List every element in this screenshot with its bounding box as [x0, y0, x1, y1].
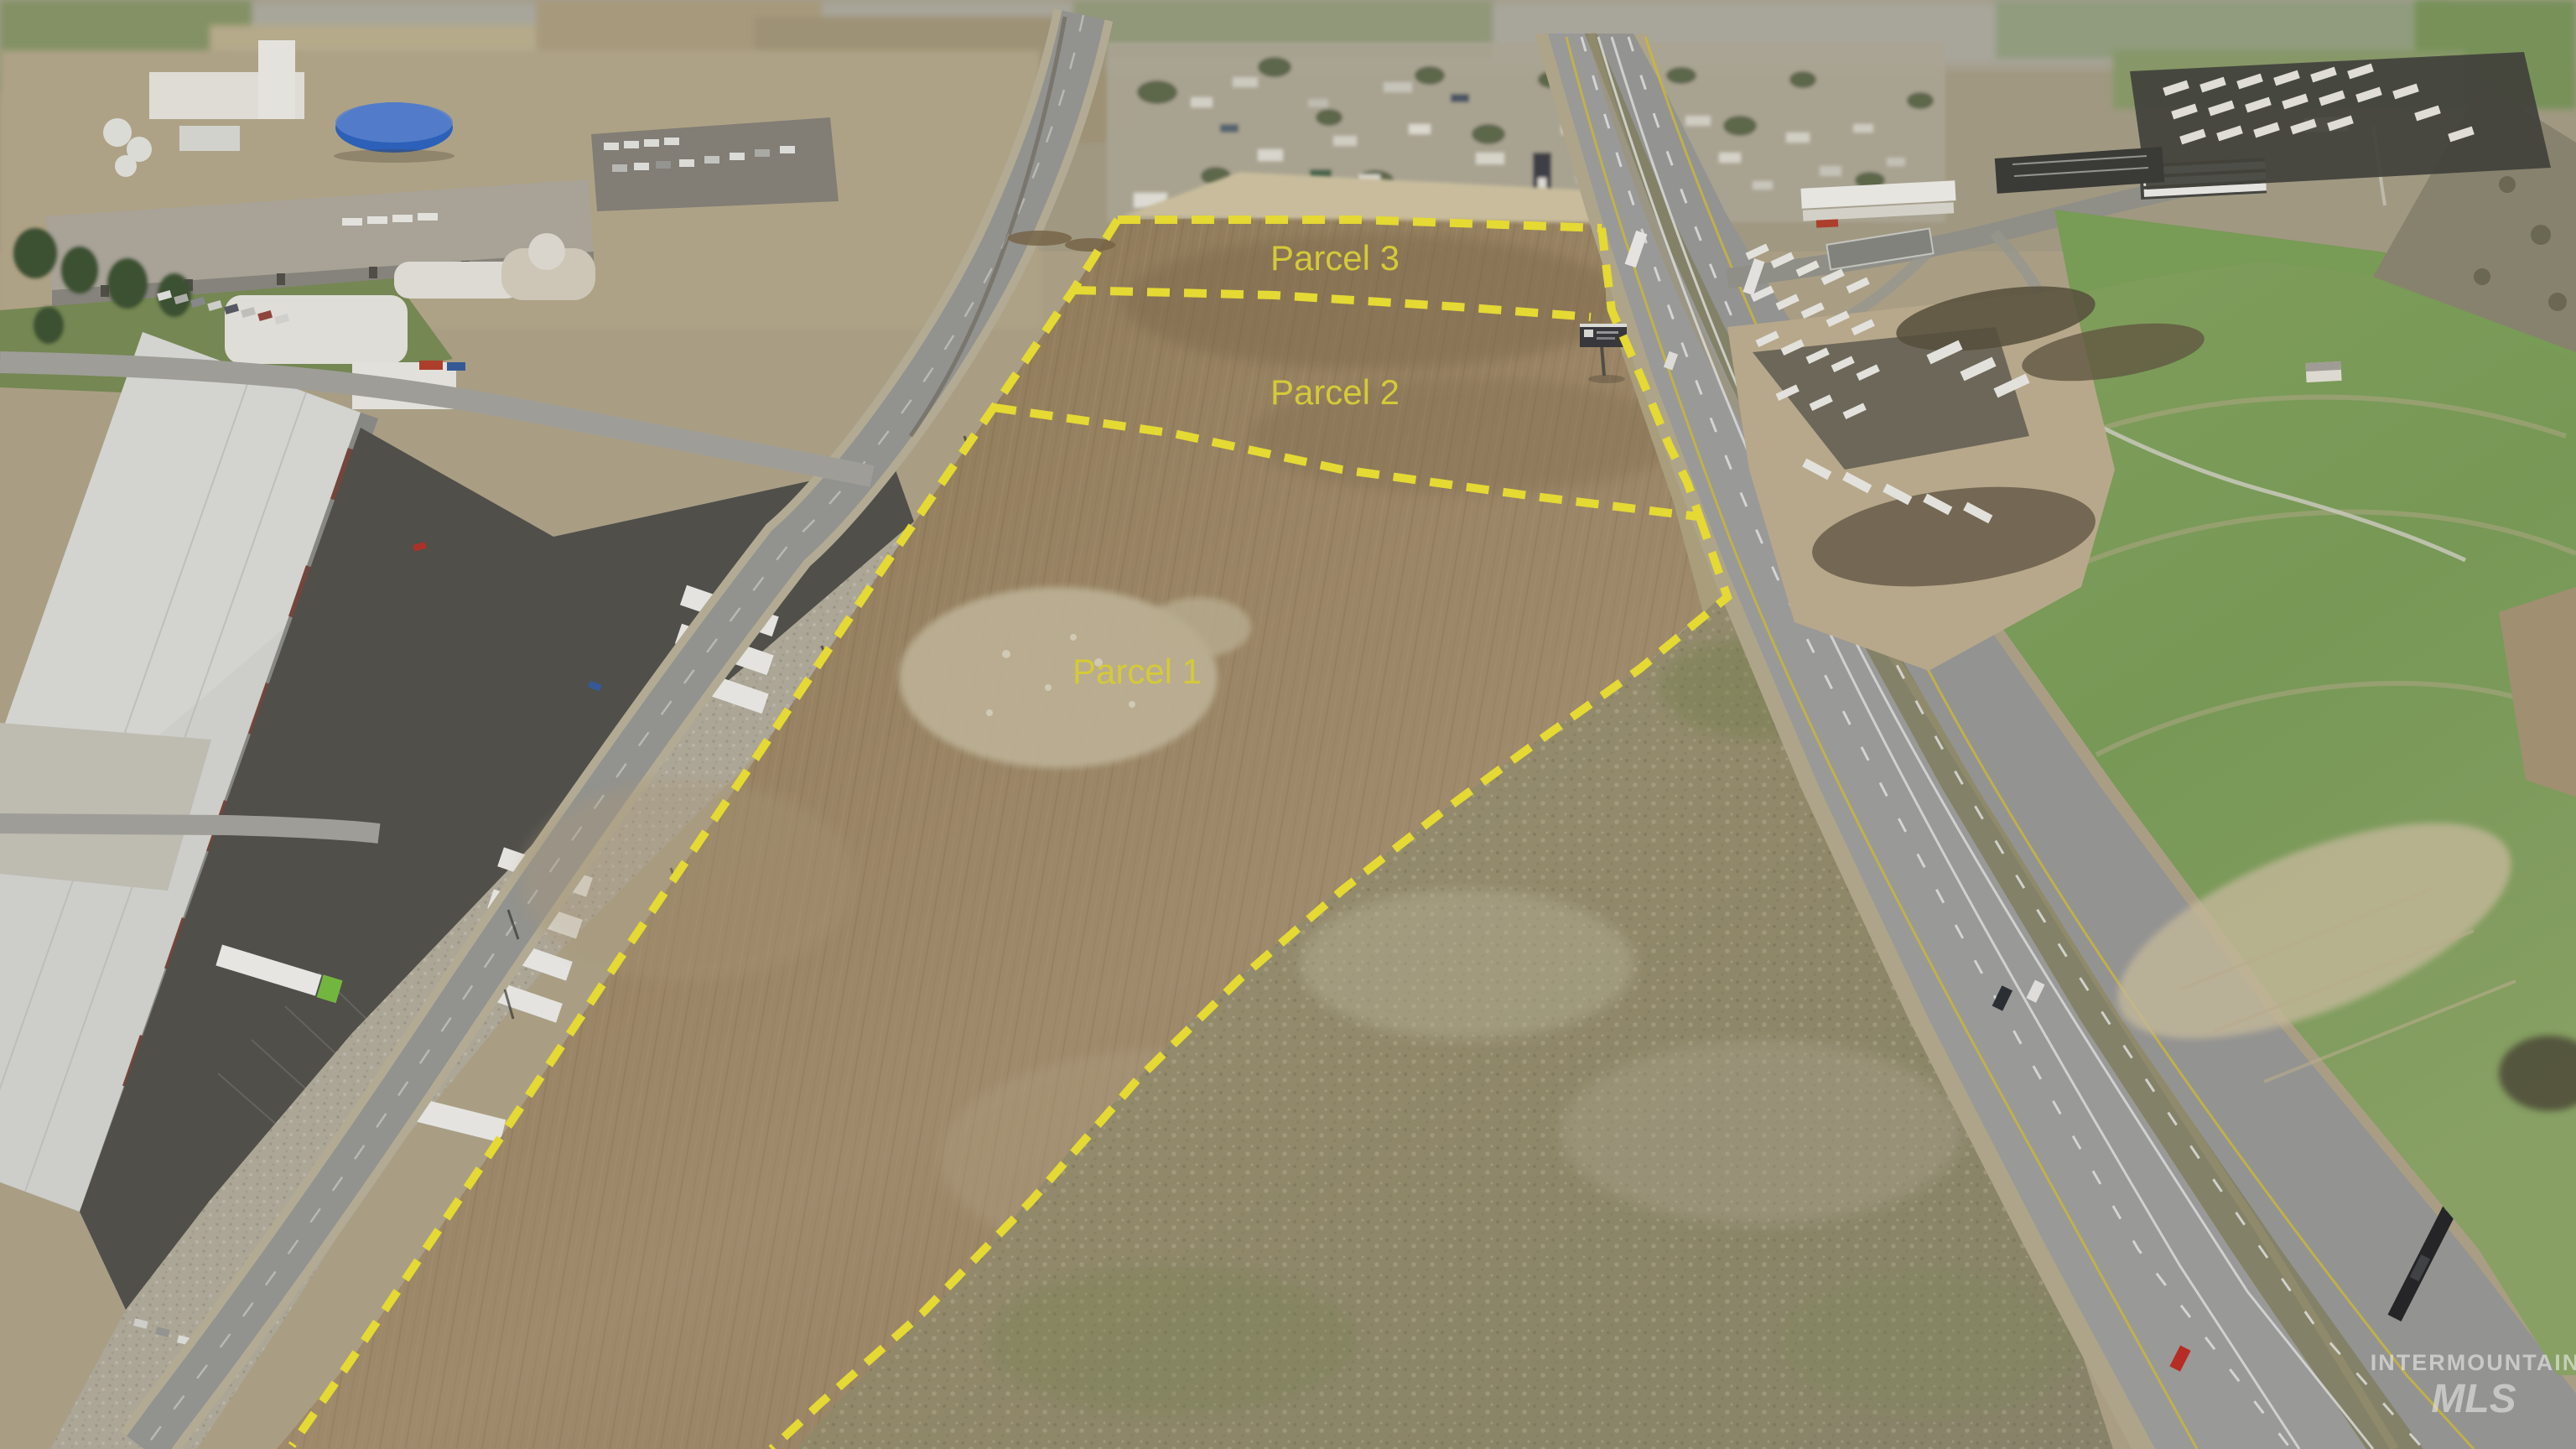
photo-grain-overlay — [0, 0, 2576, 1449]
aerial-photo-canvas: Parcel 3 Parcel 2 Parcel 1 INTERMOUNTAIN… — [0, 0, 2576, 1449]
aerial-photo: Parcel 3 Parcel 2 Parcel 1 INTERMOUNTAIN… — [0, 0, 2576, 1449]
